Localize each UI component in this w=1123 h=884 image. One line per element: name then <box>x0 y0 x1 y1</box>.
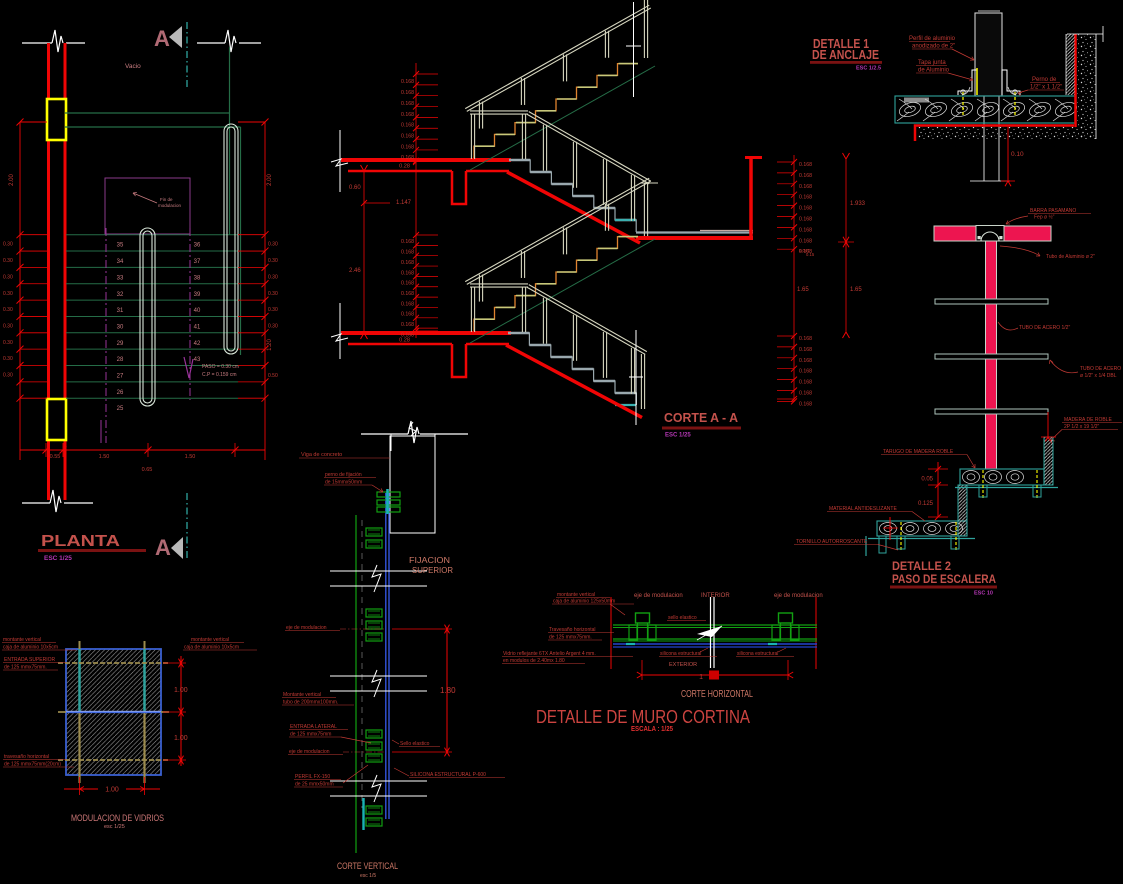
svg-text:montante vertical: montante vertical <box>191 637 229 643</box>
svg-text:0.30: 0.30 <box>3 323 13 329</box>
svg-text:0.168: 0.168 <box>799 206 812 212</box>
svg-text:C.P = 0.159 cm: C.P = 0.159 cm <box>202 372 237 378</box>
svg-text:ESC 1/25: ESC 1/25 <box>44 555 72 562</box>
svg-text:TORNILLO AUTORROSCANTE: TORNILLO AUTORROSCANTE <box>796 539 868 545</box>
svg-text:travesaño horizontal: travesaño horizontal <box>4 754 49 760</box>
svg-text:CORTE A - A: CORTE A - A <box>664 411 738 425</box>
svg-text:SUPERIOR: SUPERIOR <box>412 566 453 575</box>
svg-text:Perfil de aluminio: Perfil de aluminio <box>909 36 956 42</box>
svg-text:1.20: 1.20 <box>267 339 273 351</box>
svg-text:0.10: 0.10 <box>1011 151 1024 158</box>
svg-text:42: 42 <box>194 341 201 347</box>
svg-text:2.46: 2.46 <box>349 268 361 274</box>
svg-text:0.168: 0.168 <box>799 369 812 375</box>
svg-text:25: 25 <box>117 406 124 412</box>
svg-text:SILICONA ESTRUCTURAL P-600: SILICONA ESTRUCTURAL P-600 <box>410 772 486 778</box>
svg-text:0.125: 0.125 <box>918 501 934 507</box>
svg-text:0.168: 0.168 <box>401 312 414 318</box>
svg-text:0.30: 0.30 <box>268 242 278 248</box>
svg-text:0.168: 0.168 <box>799 184 812 190</box>
svg-text:0.30: 0.30 <box>268 291 278 297</box>
svg-text:0.168: 0.168 <box>799 358 812 364</box>
svg-text:de 25 mmx50mm: de 25 mmx50mm <box>295 782 334 788</box>
svg-text:0.168: 0.168 <box>401 144 414 150</box>
svg-text:35: 35 <box>117 243 124 249</box>
svg-text:0.50: 0.50 <box>268 373 278 379</box>
svg-text:0.30: 0.30 <box>3 340 13 346</box>
svg-text:anodizado de 2": anodizado de 2" <box>912 44 955 50</box>
svg-text:eje de modulacion: eje de modulacion <box>634 593 683 599</box>
svg-text:0.168: 0.168 <box>799 195 812 201</box>
svg-text:0.168: 0.168 <box>401 155 414 161</box>
svg-text:de Aluminio: de Aluminio <box>918 68 950 74</box>
svg-text:1/2" x 1 1/2": 1/2" x 1 1/2" <box>1030 85 1062 91</box>
svg-text:ESC 1/2.5: ESC 1/2.5 <box>856 66 881 72</box>
svg-text:0.28: 0.28 <box>399 338 410 344</box>
svg-text:0.168: 0.168 <box>401 79 414 85</box>
svg-text:27: 27 <box>117 374 124 380</box>
svg-text:0.30: 0.30 <box>3 258 13 264</box>
svg-text:0.168: 0.168 <box>799 336 812 342</box>
svg-text:montante vertical: montante vertical <box>557 592 595 598</box>
svg-text:EXTERIOR: EXTERIOR <box>669 662 697 668</box>
svg-text:1.147: 1.147 <box>396 200 412 206</box>
svg-text:0.15: 0.15 <box>806 252 815 257</box>
svg-text:0.30: 0.30 <box>3 373 13 379</box>
svg-text:2P 1/2 x 19 1/2": 2P 1/2 x 19 1/2" <box>1064 424 1100 430</box>
svg-text:Montante vertical: Montante vertical <box>283 692 321 698</box>
svg-text:0.55: 0.55 <box>50 454 61 460</box>
svg-text:ESC 1/25: ESC 1/25 <box>665 433 691 439</box>
svg-text:de 125 mmx75mm.: de 125 mmx75mm. <box>549 635 592 641</box>
svg-text:38: 38 <box>194 275 201 281</box>
svg-text:ENTRADA LATERAL: ENTRADA LATERAL <box>290 724 337 730</box>
svg-text:PASO DE ESCALERA: PASO DE ESCALERA <box>892 572 996 586</box>
svg-text:1.65: 1.65 <box>797 287 809 293</box>
svg-text:0.168: 0.168 <box>401 270 414 276</box>
svg-text:37: 37 <box>194 259 201 265</box>
svg-text:modulacion: modulacion <box>158 203 182 208</box>
svg-text:ENTRADA SUPERIOR: ENTRADA SUPERIOR <box>4 657 56 663</box>
svg-text:0.30: 0.30 <box>3 356 13 362</box>
svg-text:0.168: 0.168 <box>401 291 414 297</box>
svg-text:A: A <box>155 535 171 560</box>
svg-text:DETALLE DE MURO CORTINA: DETALLE DE MURO CORTINA <box>536 707 750 727</box>
svg-text:Fin de: Fin de <box>160 197 173 202</box>
svg-text:PASO = 0.30 cm: PASO = 0.30 cm <box>202 364 239 370</box>
svg-text:caja de aluminio 10x5cm: caja de aluminio 10x5cm <box>3 645 58 651</box>
svg-text:0.168: 0.168 <box>401 322 414 328</box>
svg-text:MATERIAL ANTIDESLIZANTE: MATERIAL ANTIDESLIZANTE <box>829 506 897 512</box>
svg-text:41: 41 <box>194 324 201 330</box>
svg-text:0.65: 0.65 <box>142 467 153 473</box>
svg-text:Tapa junta: Tapa junta <box>918 60 946 66</box>
svg-text:32: 32 <box>117 292 124 298</box>
svg-text:1.00: 1.00 <box>174 687 188 694</box>
svg-text:0.168: 0.168 <box>799 347 812 353</box>
svg-text:0.60: 0.60 <box>349 185 361 191</box>
svg-text:ESC 10: ESC 10 <box>974 591 993 597</box>
svg-text:1.00: 1.00 <box>174 735 188 742</box>
svg-text:1.50: 1.50 <box>99 454 110 460</box>
svg-text:Perno de: Perno de <box>1032 77 1057 83</box>
svg-text:silicona estructural: silicona estructural <box>660 651 701 657</box>
svg-text:eje de modulacion: eje de modulacion <box>289 749 330 755</box>
svg-text:1.50: 1.50 <box>185 454 196 460</box>
svg-text:Vidrio reflejante 6TX Antelio: Vidrio reflejante 6TX Antelio Argent 4 m… <box>503 651 596 657</box>
svg-text:26: 26 <box>117 390 124 396</box>
svg-text:43: 43 <box>194 357 201 363</box>
svg-text:caja de aluminio 10x5cm: caja de aluminio 10x5cm <box>184 645 239 651</box>
svg-text:TUBO DE ACERO: TUBO DE ACERO <box>1080 366 1121 372</box>
svg-text:0.30: 0.30 <box>268 258 278 264</box>
svg-text:31: 31 <box>117 308 124 314</box>
svg-text:A: A <box>154 26 170 51</box>
svg-text:de 125 mmx75mm(20cm): de 125 mmx75mm(20cm) <box>4 762 61 768</box>
svg-text:0.168: 0.168 <box>401 281 414 287</box>
svg-text:0.168: 0.168 <box>401 250 414 256</box>
svg-text:INTERIOR: INTERIOR <box>701 593 730 599</box>
svg-text:36: 36 <box>194 243 201 249</box>
svg-text:MADERA DE ROBLE: MADERA DE ROBLE <box>1064 417 1112 423</box>
svg-text:MODULACION DE VIDRIOS: MODULACION DE VIDRIOS <box>71 813 164 823</box>
svg-text:0.168: 0.168 <box>799 391 812 397</box>
svg-text:montante vertical: montante vertical <box>3 637 41 643</box>
svg-text:tubo de 200mmx100mm.: tubo de 200mmx100mm. <box>283 700 338 706</box>
svg-text:CORTE VERTICAL: CORTE VERTICAL <box>337 861 398 871</box>
svg-text:caja de aluminio 125x50mm: caja de aluminio 125x50mm <box>553 599 615 605</box>
svg-text:sello elastico: sello elastico <box>668 615 697 621</box>
svg-text:TUBO DE ACERO 1/2": TUBO DE ACERO 1/2" <box>1019 325 1070 331</box>
svg-text:0.28: 0.28 <box>399 164 410 170</box>
svg-text:Viga de concreto: Viga de concreto <box>301 452 342 458</box>
svg-text:0.168: 0.168 <box>401 301 414 307</box>
svg-text:Tubo de Aluminio ø 2": Tubo de Aluminio ø 2" <box>1046 254 1095 260</box>
svg-text:0.30: 0.30 <box>3 274 13 280</box>
svg-text:0.168: 0.168 <box>401 239 414 245</box>
svg-text:0.168: 0.168 <box>799 173 812 179</box>
svg-text:0.168: 0.168 <box>401 260 414 266</box>
svg-text:28: 28 <box>117 357 124 363</box>
svg-text:33: 33 <box>117 275 124 281</box>
svg-text:2.00: 2.00 <box>267 174 273 186</box>
svg-text:0.168: 0.168 <box>799 401 812 407</box>
svg-text:0.30: 0.30 <box>268 274 278 280</box>
svg-text:1.933: 1.933 <box>850 201 866 207</box>
svg-text:0.168: 0.168 <box>401 90 414 96</box>
svg-text:0.168: 0.168 <box>799 227 812 233</box>
svg-text:0.168: 0.168 <box>401 101 414 107</box>
svg-text:34: 34 <box>117 259 124 265</box>
svg-text:1.00: 1.00 <box>105 787 119 794</box>
svg-text:0.30: 0.30 <box>3 242 13 248</box>
svg-text:PERFIL FX-150: PERFIL FX-150 <box>295 774 330 780</box>
svg-text:esc 1/5: esc 1/5 <box>360 873 376 879</box>
svg-text:eje de modulacion: eje de modulacion <box>774 593 823 599</box>
svg-text:TARUGO DE MADERA ROBLE: TARUGO DE MADERA ROBLE <box>883 449 954 455</box>
svg-text:0.168: 0.168 <box>401 112 414 118</box>
svg-text:Fep ø ½": Fep ø ½" <box>1034 214 1055 221</box>
svg-text:0.168: 0.168 <box>401 133 414 139</box>
svg-text:ø 1/2" x 1/4 DBL: ø 1/2" x 1/4 DBL <box>1080 373 1117 379</box>
svg-text:0.168: 0.168 <box>799 380 812 386</box>
svg-text:2.00: 2.00 <box>9 174 15 186</box>
svg-text:0.168: 0.168 <box>401 123 414 129</box>
svg-text:30: 30 <box>117 324 124 330</box>
svg-text:0.05: 0.05 <box>921 477 933 483</box>
svg-text:29: 29 <box>117 341 124 347</box>
svg-text:CORTE HORIZONTAL: CORTE HORIZONTAL <box>681 689 753 700</box>
svg-text:Vacio: Vacio <box>125 63 141 70</box>
svg-text:39: 39 <box>194 292 201 298</box>
svg-text:0.168: 0.168 <box>799 238 812 244</box>
svg-text:FIJACION: FIJACION <box>409 556 450 565</box>
svg-text:PLANTA: PLANTA <box>41 533 121 550</box>
svg-text:eje de modulacion: eje de modulacion <box>286 625 327 631</box>
svg-text:silicona estructural: silicona estructural <box>737 651 778 657</box>
svg-text:esc 1/25: esc 1/25 <box>104 824 125 830</box>
svg-text:1.80: 1.80 <box>440 686 456 695</box>
svg-text:Travesaño horizontal: Travesaño horizontal <box>549 627 596 633</box>
svg-text:1.65: 1.65 <box>850 287 862 293</box>
svg-text:0.30: 0.30 <box>3 291 13 297</box>
svg-text:0.30: 0.30 <box>268 323 278 329</box>
svg-text:0.168: 0.168 <box>799 217 812 223</box>
svg-text:DETALLE 2: DETALLE 2 <box>892 559 951 573</box>
svg-text:BARRA PASAMANO: BARRA PASAMANO <box>1030 208 1076 214</box>
svg-text:0.168: 0.168 <box>799 162 812 168</box>
svg-text:Sello elastico: Sello elastico <box>400 741 430 747</box>
svg-text:de 15mmx50mm: de 15mmx50mm <box>325 480 362 486</box>
svg-text:de 125 mmx75mm: de 125 mmx75mm <box>290 732 331 738</box>
svg-text:de 125 mmx75mm.: de 125 mmx75mm. <box>4 665 47 671</box>
svg-text:ESCALA : 1/25: ESCALA : 1/25 <box>631 726 673 733</box>
svg-text:en modulos de 2.40mx 1.80: en modulos de 2.40mx 1.80 <box>503 658 565 664</box>
svg-text:40: 40 <box>194 308 201 314</box>
svg-text:0.30: 0.30 <box>268 307 278 313</box>
svg-text:0.30: 0.30 <box>3 307 13 313</box>
svg-text:perno de fijación: perno de fijación <box>325 472 362 478</box>
svg-text:1: 1 <box>699 674 703 681</box>
svg-text:DE ANCLAJE: DE ANCLAJE <box>812 48 879 62</box>
